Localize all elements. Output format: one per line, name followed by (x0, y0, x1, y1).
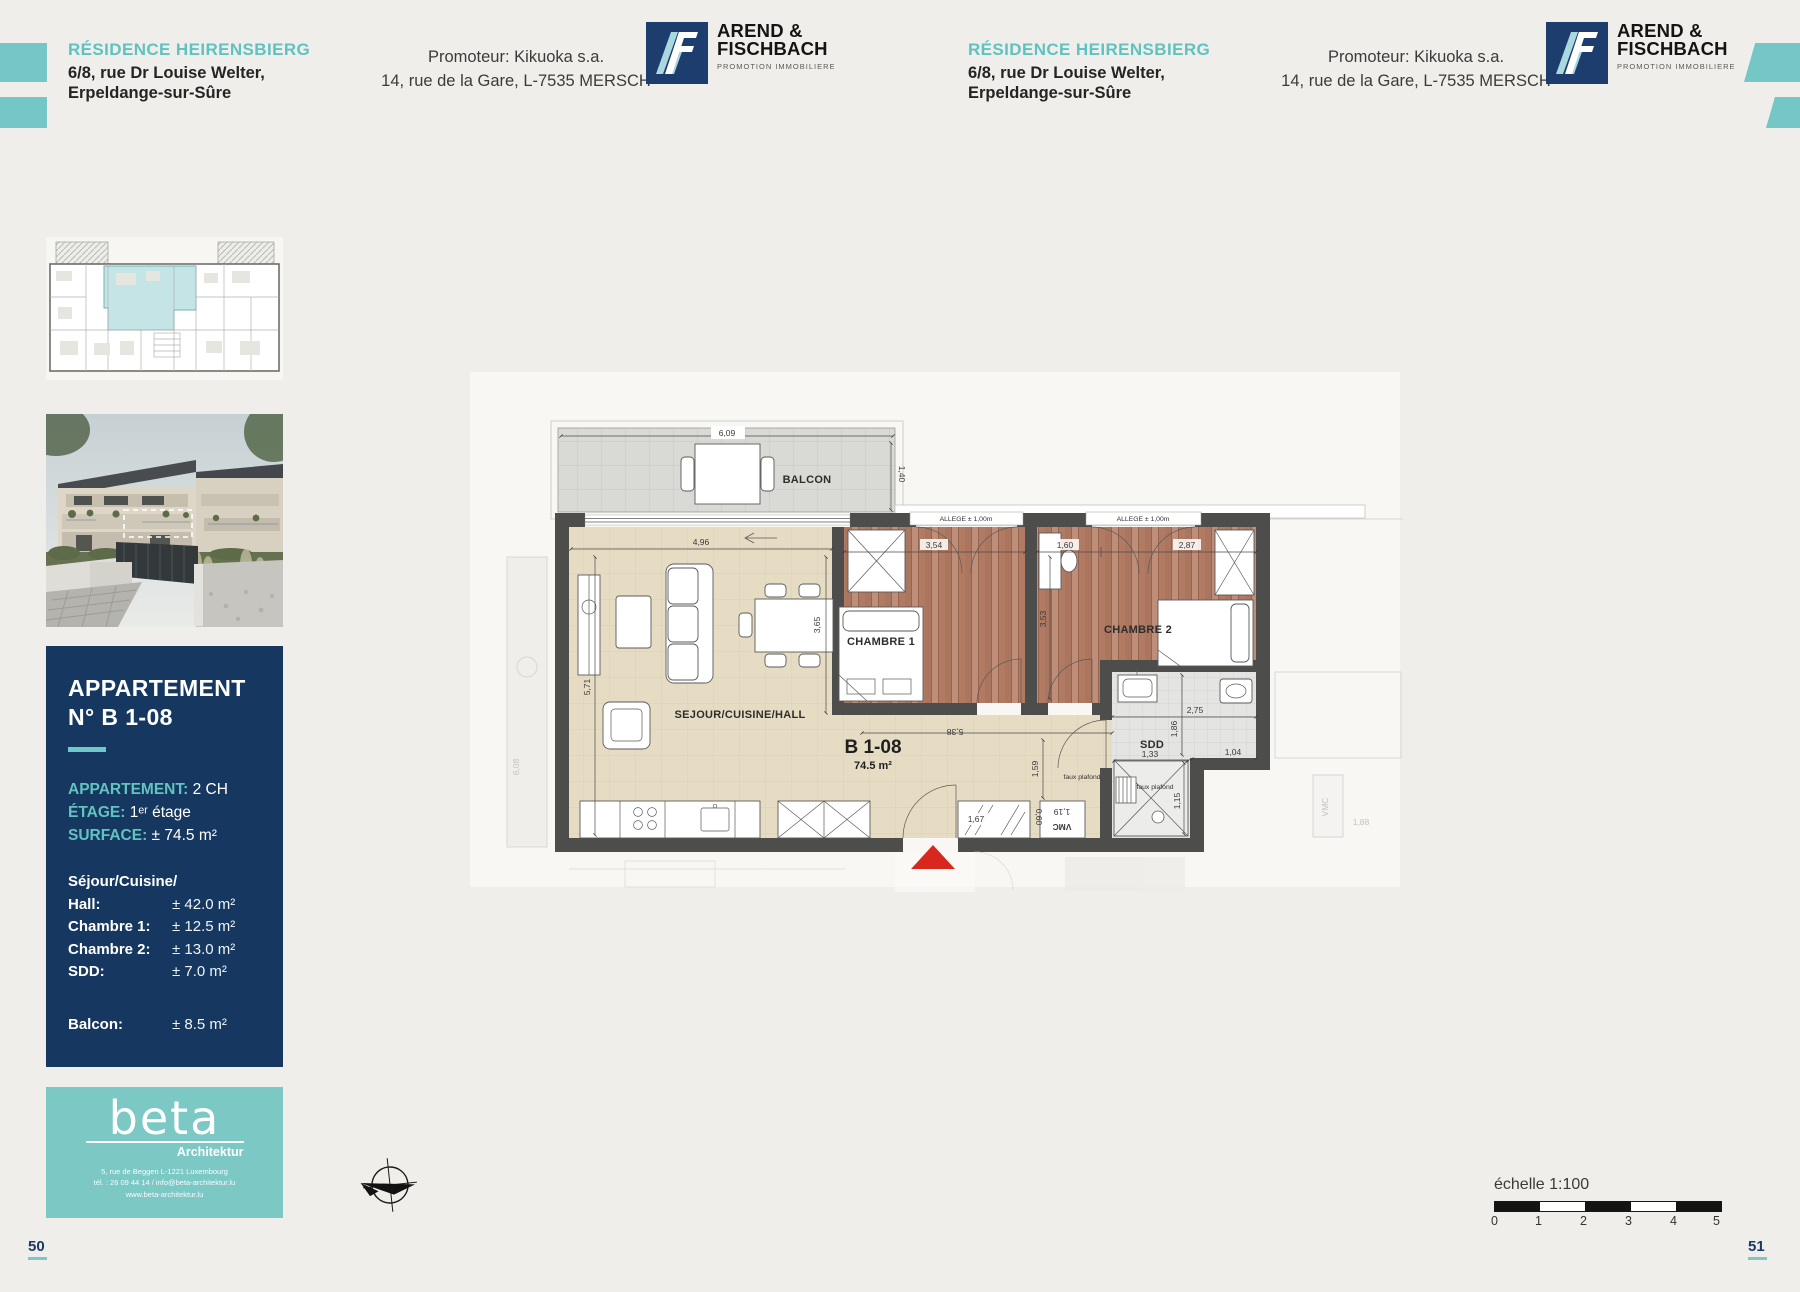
balcony-label: BALCON (783, 474, 832, 486)
dining-chair (799, 584, 820, 597)
header-left: RÉSIDENCE HEIRENSBIERG 6/8, rue Dr Louis… (68, 40, 310, 104)
allege-note: ALLEGE ± 1,00m (1117, 516, 1170, 523)
wardrobe (848, 530, 905, 592)
dim-bedroom2-a: 1,60 (1057, 540, 1074, 550)
developer-name-line2: FISCHBACH (1617, 40, 1736, 58)
developer-logo-right: AREND & FISCHBACH PROMOTION IMMOBILIERE (1546, 22, 1736, 84)
developer-name-line2: FISCHBACH (717, 40, 836, 58)
neighbour-ghost-left: 6,08 (507, 557, 547, 847)
dining-chair (739, 613, 752, 637)
card-title-line1: APPARTEMENT (68, 674, 265, 703)
faux-plafond-note: faux plafond (1063, 774, 1100, 781)
dim-closet-depth: 0,60 (1034, 809, 1044, 826)
balcony-table (695, 444, 760, 504)
dim-balcony-depth: 1,40 (897, 466, 907, 483)
promoter-line1: Promoteur: Kikuoka s.a. (1266, 46, 1566, 70)
teal-bar (0, 97, 47, 128)
room-row: Hall: ± 42.0 m² (68, 894, 265, 917)
beta-logo: beta (46, 1095, 283, 1141)
scale-label: échelle 1:100 (1494, 1176, 1734, 1194)
balcony-chair (761, 457, 774, 491)
vmc-duct: 1,19 VMC (1040, 801, 1085, 838)
corridor-ghost (569, 852, 1185, 892)
bed (839, 607, 923, 701)
dim-living-height: 3,65 (812, 616, 822, 633)
balcony-row: Balcon: ± 8.5 m² (68, 1014, 265, 1037)
promoter-line2: 14, rue de la Gare, L-7535 MERSCH (1266, 70, 1566, 94)
rooms-intro: Séjour/Cuisine/ (68, 871, 265, 894)
promoter-line1: Promoteur: Kikuoka s.a. (366, 46, 666, 70)
svg-text:6,08: 6,08 (511, 758, 521, 775)
floor-plan: 6,08 6,09 1,40 BALCON (505, 417, 1403, 897)
vmc-label: VMC (1053, 822, 1072, 832)
allege-note: ALLEGE ± 1,00m (940, 516, 993, 523)
coffee-table (616, 596, 651, 648)
compass-icon (360, 1155, 420, 1215)
dim-bedroom2-b: 2,87 (1179, 540, 1196, 550)
bed (1158, 600, 1253, 666)
dim-bedroom2-height: 3,53 (1038, 610, 1048, 627)
apartment-info-card: APPARTEMENT N° B 1-08 APPARTEMENT: 2 CH … (46, 646, 283, 1067)
developer-tagline: PROMOTION IMMOBILIERE (717, 62, 836, 71)
residence-title: RÉSIDENCE HEIRENSBIERG (968, 40, 1210, 60)
dim-bath-b: 1,04 (1225, 747, 1242, 757)
scale-bar: échelle 1:100 0 1 2 3 4 5 (1494, 1176, 1734, 1228)
dim-balcony-width: 6,09 (719, 428, 736, 438)
scale-tick: 0 (1491, 1214, 1498, 1228)
bedroom2-label: CHAMBRE 2 (1104, 624, 1172, 636)
dining-chair (799, 654, 820, 667)
page-number-left: 50 (28, 1238, 47, 1260)
dim-duct-width: 1,19 (1053, 807, 1070, 817)
wardrobe (1215, 530, 1254, 595)
dining-chair (765, 584, 786, 597)
teal-bar (1766, 97, 1800, 128)
scale-tick: 3 (1625, 1214, 1632, 1228)
balcony: 6,09 1,40 BALCON (551, 421, 907, 519)
room-row: Chambre 1: ± 12.5 m² (68, 916, 265, 939)
developer-tagline: PROMOTION IMMOBILIERE (1617, 62, 1736, 71)
header-right: RÉSIDENCE HEIRENSBIERG 6/8, rue Dr Louis… (968, 40, 1210, 104)
af-monogram-icon (1546, 22, 1608, 84)
hall-wardrobe (778, 801, 870, 838)
key-plan-thumbnail (46, 237, 283, 380)
balcony-chair (681, 457, 694, 491)
scale-tick: 2 (1580, 1214, 1587, 1228)
unit-number: B 1-08 (844, 737, 901, 758)
dim-ghost-right: 1,88 (1353, 817, 1370, 827)
unit-area: 74.5 m² (854, 760, 892, 772)
hall-closet: 1,67 (958, 801, 1030, 838)
brochure-spread: RÉSIDENCE HEIRENSBIERG 6/8, rue Dr Louis… (0, 0, 1800, 1292)
page-number-right: 51 (1748, 1238, 1767, 1260)
dim-shower-width: 1,33 (1142, 749, 1159, 759)
residence-title: RÉSIDENCE HEIRENSBIERG (68, 40, 310, 60)
dim-hall-height: 1,59 (1030, 760, 1040, 777)
architect-website: www.beta-architektur.lu (46, 1189, 283, 1201)
spec-etage: ÉTAGE: 1ᵉʳ étage (68, 801, 265, 824)
dim-living-left: 5,71 (582, 678, 592, 695)
dim-bath-height: 1,86 (1169, 720, 1179, 737)
toilet (1220, 679, 1252, 703)
af-monogram-icon (646, 22, 708, 84)
dim-bedroom1-width: 3,54 (926, 540, 943, 550)
architect-card: beta Architektur 5, rue de Beggen L-1221… (46, 1087, 283, 1218)
developer-logo-left: AREND & FISCHBACH PROMOTION IMMOBILIERE (646, 22, 836, 84)
residence-address-line1: 6/8, rue Dr Louise Welter, (968, 64, 1210, 84)
teal-divider (68, 747, 106, 752)
dim-hall-width: 5,38 (946, 727, 963, 737)
room-row: Chambre 2: ± 13.0 m² (68, 939, 265, 962)
bedroom1-label: CHAMBRE 1 (847, 636, 915, 648)
dining-chair (765, 654, 786, 667)
scale-tick: 5 (1713, 1214, 1720, 1228)
building-photo (46, 414, 283, 627)
spec-surface: SURFACE: ± 74.5 m² (68, 824, 265, 847)
scale-tick: 1 (1535, 1214, 1542, 1228)
scale-tick: 4 (1670, 1214, 1677, 1228)
spec-apartment: APPARTEMENT: 2 CH (68, 778, 265, 801)
vmc-label: VMC (1320, 798, 1330, 817)
towel-radiator (1116, 777, 1136, 803)
room-row: SDD: ± 7.0 m² (68, 961, 265, 984)
residence-address-line2: Erpeldange-sur-Sûre (68, 84, 310, 104)
faux-plafond-note: faux plafond (1136, 784, 1173, 791)
architect-contact: tél. : 26 09 44 14 / info@beta-architekt… (46, 1177, 283, 1189)
architect-address: 5, rue de Beggen L-1221 Luxembourg (46, 1166, 283, 1178)
scale-bar-graphic (1494, 1201, 1722, 1212)
residence-address-line2: Erpeldange-sur-Sûre (968, 84, 1210, 104)
living-label: SEJOUR/CUISINE/HALL (675, 709, 806, 721)
dim-shower-height: 1,15 (1172, 792, 1182, 809)
teal-bar (0, 43, 47, 82)
promoter-right: Promoteur: Kikuoka s.a. 14, rue de la Ga… (1266, 46, 1566, 94)
kitchen-counter (580, 801, 760, 838)
promoter-line2: 14, rue de la Gare, L-7535 MERSCH (366, 70, 666, 94)
dim-closet-width: 1,67 (968, 814, 985, 824)
card-title-line2: N° B 1-08 (68, 703, 265, 732)
dim-living-width: 4,96 (693, 537, 710, 547)
neighbour-ghost-right: VMC 1,88 (1270, 519, 1403, 837)
dim-bath-width: 2,75 (1187, 705, 1204, 715)
promoter-left: Promoteur: Kikuoka s.a. 14, rue de la Ga… (366, 46, 666, 94)
beta-subtitle: Architektur (86, 1145, 244, 1159)
teal-bar (1744, 43, 1800, 82)
residence-address-line1: 6/8, rue Dr Louise Welter, (68, 64, 310, 84)
desk-chair (1061, 550, 1077, 572)
